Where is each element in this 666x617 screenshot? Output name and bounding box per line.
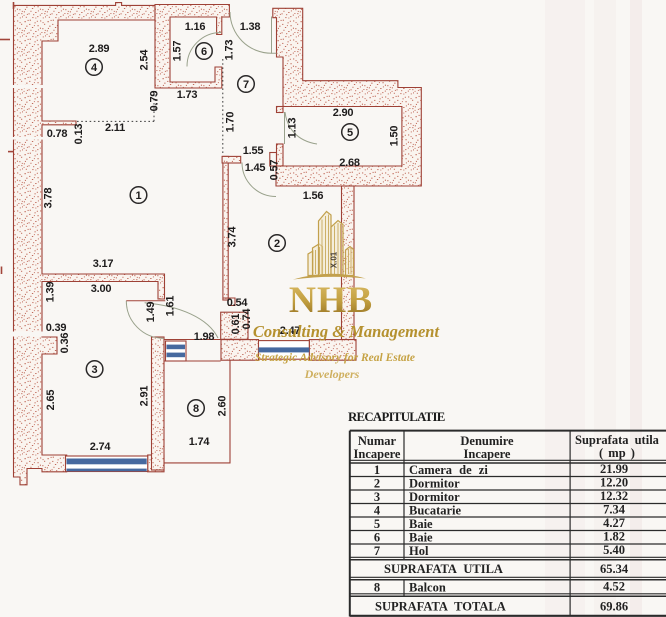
svg-text:NHB: NHB bbox=[289, 280, 373, 321]
svg-text:0.36: 0.36 bbox=[59, 333, 71, 354]
svg-text:Baie: Baie bbox=[409, 530, 433, 544]
svg-text:Baie: Baie bbox=[409, 517, 433, 531]
svg-text:2.89: 2.89 bbox=[89, 43, 110, 55]
svg-text:21.99: 21.99 bbox=[600, 462, 628, 476]
svg-text:0.57: 0.57 bbox=[269, 160, 281, 181]
svg-text:Camera de zi: Camera de zi bbox=[409, 463, 488, 477]
svg-text:3.17: 3.17 bbox=[93, 258, 114, 270]
svg-text:SUPRAFATA TOTALA: SUPRAFATA TOTALA bbox=[375, 599, 506, 613]
svg-text:3.78: 3.78 bbox=[43, 188, 55, 209]
svg-text:1.82: 1.82 bbox=[603, 529, 625, 543]
svg-text:1: 1 bbox=[374, 463, 380, 477]
svg-text:Numar: Numar bbox=[358, 434, 397, 448]
svg-text:0.54: 0.54 bbox=[227, 297, 249, 309]
svg-text:0.39: 0.39 bbox=[46, 322, 67, 334]
svg-text:1.50: 1.50 bbox=[389, 126, 401, 147]
svg-text:6: 6 bbox=[201, 46, 207, 58]
svg-text:2.68: 2.68 bbox=[339, 157, 360, 169]
svg-text:2.91: 2.91 bbox=[139, 386, 151, 407]
svg-text:Incapere: Incapere bbox=[354, 447, 401, 461]
svg-text:0.79: 0.79 bbox=[149, 91, 161, 112]
svg-text:1.74: 1.74 bbox=[189, 436, 211, 448]
svg-text:Incapere: Incapere bbox=[464, 447, 511, 461]
svg-text:4.52: 4.52 bbox=[603, 579, 625, 593]
svg-text:2.54: 2.54 bbox=[139, 49, 151, 71]
svg-text:5.40: 5.40 bbox=[603, 543, 625, 557]
svg-text:3.00: 3.00 bbox=[91, 283, 112, 295]
svg-text:Consulting & Management: Consulting & Management bbox=[253, 322, 440, 341]
svg-text:3.74: 3.74 bbox=[227, 226, 239, 248]
svg-text:3: 3 bbox=[374, 490, 380, 504]
svg-text:RECAPITULATIE: RECAPITULATIE bbox=[348, 410, 445, 424]
svg-text:1.57: 1.57 bbox=[172, 41, 184, 62]
svg-text:Developers: Developers bbox=[304, 367, 360, 381]
svg-text:0.74: 0.74 bbox=[241, 308, 253, 330]
svg-text:2: 2 bbox=[374, 476, 380, 490]
svg-text:Dormitor: Dormitor bbox=[409, 476, 460, 490]
svg-text:1.38: 1.38 bbox=[240, 21, 261, 33]
svg-text:Strategic Advisory for Real Es: Strategic Advisory for Real Estate bbox=[255, 352, 415, 364]
svg-text:3: 3 bbox=[92, 364, 98, 376]
svg-text:7.34: 7.34 bbox=[603, 502, 626, 516]
svg-text:1.61: 1.61 bbox=[165, 296, 177, 317]
svg-text:12.20: 12.20 bbox=[600, 475, 628, 489]
svg-text:2.74: 2.74 bbox=[90, 441, 112, 453]
svg-text:6: 6 bbox=[374, 530, 380, 544]
svg-text:2.60: 2.60 bbox=[217, 396, 229, 417]
svg-text:( mp ): ( mp ) bbox=[599, 446, 635, 460]
svg-text:12.32: 12.32 bbox=[600, 489, 628, 503]
svg-text:69.86: 69.86 bbox=[600, 599, 628, 613]
svg-text:1.49: 1.49 bbox=[145, 302, 157, 323]
svg-text:4: 4 bbox=[374, 503, 381, 517]
svg-text:1.55: 1.55 bbox=[243, 145, 264, 157]
svg-text:SUPRAFATA UTILA: SUPRAFATA UTILA bbox=[384, 562, 503, 576]
svg-text:1.56: 1.56 bbox=[303, 190, 324, 202]
svg-text:0.13: 0.13 bbox=[73, 124, 85, 145]
svg-text:1: 1 bbox=[135, 190, 141, 202]
svg-text:8: 8 bbox=[374, 580, 380, 594]
svg-text:1.70: 1.70 bbox=[225, 112, 237, 133]
svg-text:1.98: 1.98 bbox=[194, 331, 215, 343]
svg-text:Dormitor: Dormitor bbox=[409, 490, 460, 504]
svg-text:2.11: 2.11 bbox=[105, 122, 125, 134]
svg-text:X.01: X.01 bbox=[330, 251, 339, 268]
svg-text:2.90: 2.90 bbox=[333, 107, 354, 119]
svg-text:7: 7 bbox=[374, 544, 380, 558]
svg-text:Denumire: Denumire bbox=[460, 434, 514, 448]
svg-text:2.65: 2.65 bbox=[45, 390, 57, 411]
svg-text:Suprafata utila: Suprafata utila bbox=[575, 433, 660, 447]
svg-text:5: 5 bbox=[374, 517, 380, 531]
svg-text:7: 7 bbox=[243, 79, 249, 91]
svg-text:Balcon: Balcon bbox=[409, 580, 446, 594]
svg-text:4: 4 bbox=[91, 62, 98, 74]
svg-text:0.78: 0.78 bbox=[47, 128, 68, 140]
svg-text:4.27: 4.27 bbox=[603, 516, 625, 530]
svg-text:1.73: 1.73 bbox=[224, 40, 236, 61]
svg-text:Hol: Hol bbox=[409, 544, 429, 558]
svg-text:8: 8 bbox=[193, 403, 199, 415]
svg-text:5: 5 bbox=[347, 127, 353, 139]
svg-text:1.16: 1.16 bbox=[185, 21, 206, 33]
svg-text:2: 2 bbox=[274, 238, 280, 250]
svg-text:1.45: 1.45 bbox=[245, 162, 266, 174]
svg-text:1.13: 1.13 bbox=[287, 118, 299, 139]
svg-text:Bucatarie: Bucatarie bbox=[409, 503, 462, 517]
svg-text:1.73: 1.73 bbox=[177, 89, 198, 101]
svg-text:1.39: 1.39 bbox=[45, 282, 57, 303]
svg-text:65.34: 65.34 bbox=[600, 562, 629, 576]
